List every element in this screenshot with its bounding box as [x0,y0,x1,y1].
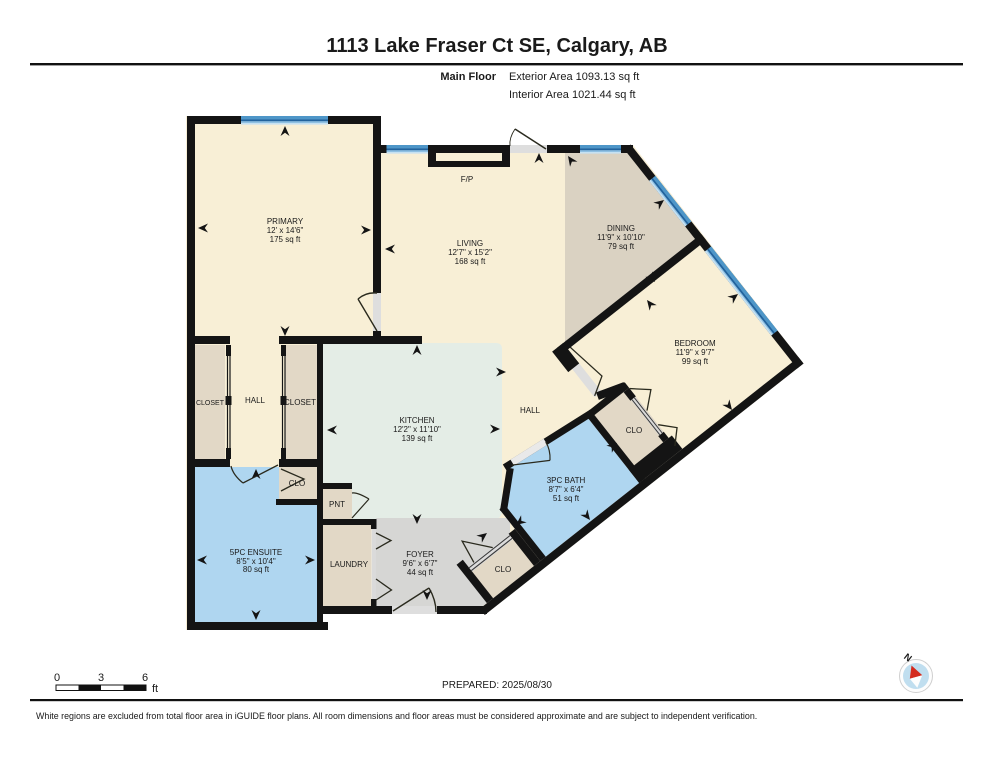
svg-text:CLO: CLO [289,479,305,488]
svg-text:LAUNDRY: LAUNDRY [330,560,369,569]
svg-text:11'9" x 10'10": 11'9" x 10'10" [597,233,645,242]
svg-text:51 sq ft: 51 sq ft [553,494,580,503]
svg-text:DINING: DINING [607,224,635,233]
svg-text:11'9" x 9'7": 11'9" x 9'7" [676,348,715,357]
svg-text:LIVING: LIVING [457,239,483,248]
svg-text:44 sq ft: 44 sq ft [407,568,434,577]
svg-text:0: 0 [54,672,60,684]
svg-text:79 sq ft: 79 sq ft [608,242,635,251]
svg-text:3PC BATH: 3PC BATH [547,476,586,485]
svg-text:PRIMARY: PRIMARY [267,217,304,226]
svg-text:3: 3 [98,672,104,684]
svg-text:FOYER: FOYER [406,550,434,559]
svg-text:8'7" x 6'4": 8'7" x 6'4" [549,485,584,494]
svg-text:Exterior Area 1093.13 sq ft: Exterior Area 1093.13 sq ft [509,71,639,83]
svg-text:KITCHEN: KITCHEN [399,416,434,425]
svg-text:F/P: F/P [461,175,473,184]
svg-text:CLO: CLO [495,565,511,574]
svg-text:BEDROOM: BEDROOM [674,339,716,348]
svg-text:99 sq ft: 99 sq ft [682,357,709,366]
svg-text:HALL: HALL [520,406,541,415]
svg-text:80 sq ft: 80 sq ft [243,565,270,574]
svg-text:HALL: HALL [245,396,266,405]
svg-text:Main Floor: Main Floor [440,71,496,83]
svg-text:CLOSET: CLOSET [196,400,225,407]
svg-text:PNT: PNT [329,500,345,509]
svg-text:9'6" x 6'7": 9'6" x 6'7" [403,559,438,568]
svg-text:CLO: CLO [626,426,642,435]
svg-text:12'2" x 11'10": 12'2" x 11'10" [393,425,441,434]
svg-text:12' x 14'6": 12' x 14'6" [267,226,304,235]
svg-text:139 sq ft: 139 sq ft [402,434,433,443]
svg-text:5PC ENSUITE: 5PC ENSUITE [230,548,282,557]
svg-text:6: 6 [142,672,148,684]
svg-text:CLOSET: CLOSET [284,398,316,407]
svg-text:168 sq ft: 168 sq ft [455,257,486,266]
svg-text:Interior Area 1021.44 sq ft: Interior Area 1021.44 sq ft [509,89,636,101]
svg-text:1113 Lake Fraser Ct SE, Calgar: 1113 Lake Fraser Ct SE, Calgary, AB [326,35,667,57]
svg-text:PREPARED: 2025/08/30: PREPARED: 2025/08/30 [442,680,552,691]
svg-text:12'7" x 15'2": 12'7" x 15'2" [448,248,492,257]
svg-text:175 sq ft: 175 sq ft [270,235,301,244]
svg-text:White regions are excluded fro: White regions are excluded from total fl… [36,711,757,721]
svg-text:ft: ft [152,683,158,695]
